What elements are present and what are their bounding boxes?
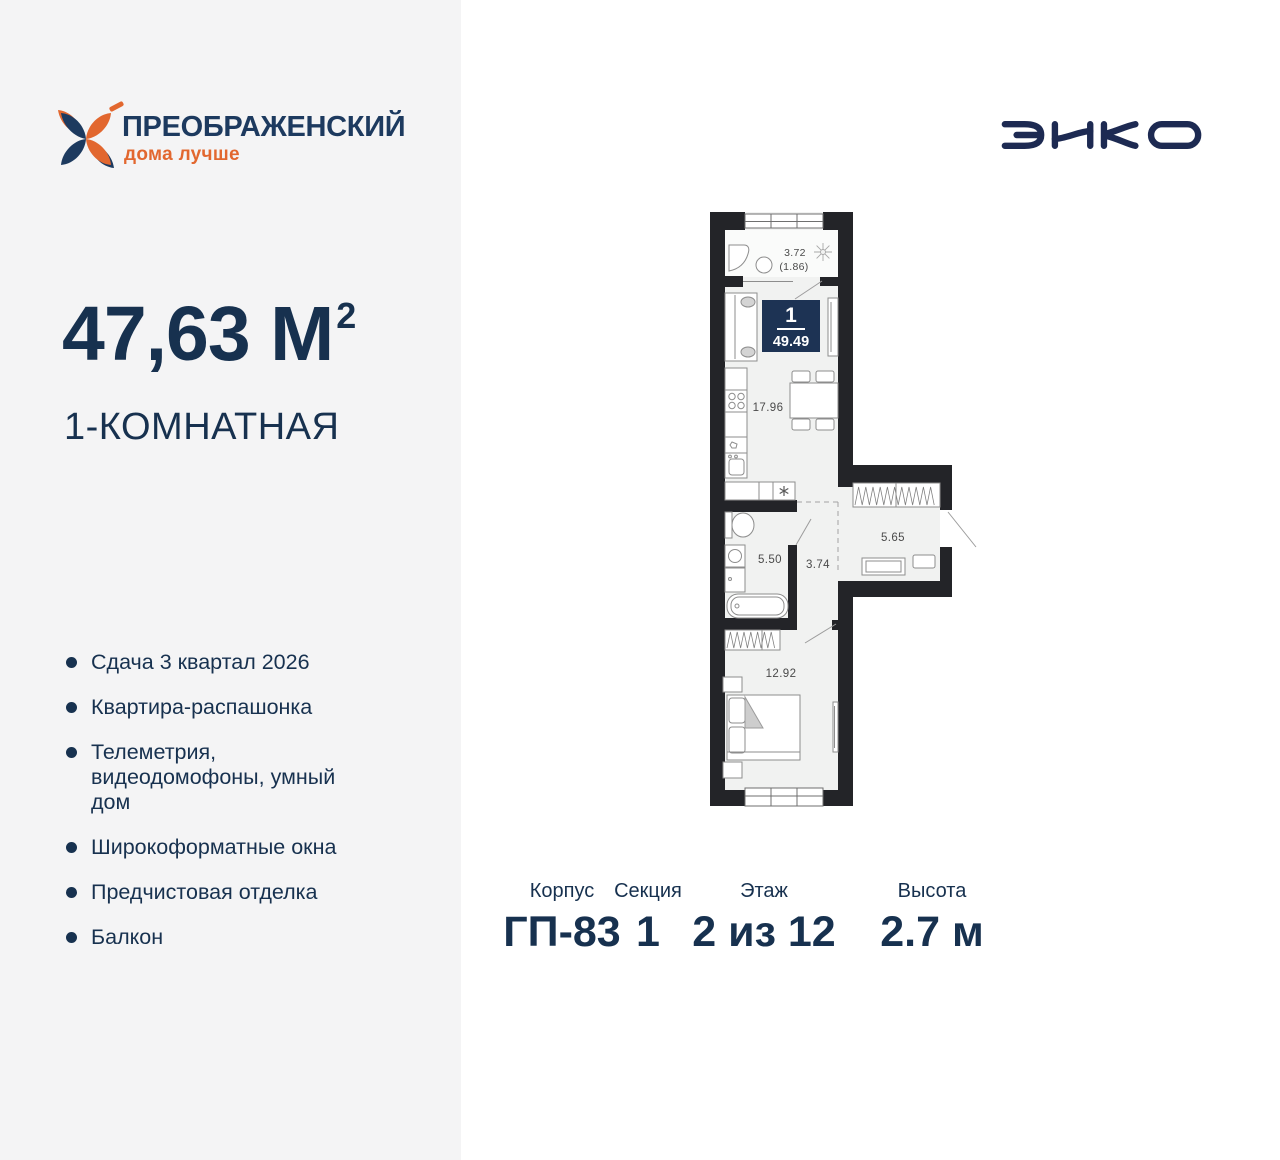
balcony-reduced-area-label: (1.86)	[779, 261, 808, 273]
enko-wordmark-icon	[998, 118, 1206, 152]
dining-table	[790, 383, 838, 418]
details-row: Корпус ГП-83 Секция 1 Этаж 2 из 12 Высот…	[0, 880, 1280, 970]
kitchen-cabinet	[725, 437, 747, 453]
pillow	[729, 698, 745, 723]
feature-item: Широкоформатные окна	[66, 835, 396, 860]
detail-floor: Этаж 2 из 12	[692, 880, 835, 957]
pouf	[913, 555, 935, 568]
chair	[816, 371, 834, 382]
bullet-dot	[66, 702, 77, 713]
badge-total-area: 49.49	[773, 334, 809, 350]
apartment-card: ПРЕОБРАЖЕНСКИЙ дома лучше 47,63 М2 1-КОМ…	[0, 0, 1280, 1160]
brand-name: ПРЕОБРАЖЕНСКИЙ	[122, 111, 405, 144]
area-title: 47,63 М2	[62, 290, 355, 379]
developer-name: ЭНКО	[1206, 118, 1207, 119]
kitchen-living-area-label: 17.96	[753, 402, 784, 414]
pillow	[729, 727, 745, 753]
feature-item: Телеметрия, видеодомофоны, умный дом	[66, 740, 396, 815]
badge-rooms: 1	[785, 304, 797, 327]
bullet-dot	[66, 657, 77, 668]
bathroom-area-label: 5.50	[758, 554, 782, 566]
chair	[816, 419, 834, 430]
entrance-area-label: 5.65	[881, 532, 905, 544]
brand-flower-icon	[58, 110, 114, 168]
detail-ceiling-height: Высота 2.7 м	[880, 880, 984, 957]
floor-plan: 1 49.49 3.72 (1.86) 17.96 5.50 3.74 5.65…	[695, 205, 995, 820]
plan-badge: 1 49.49	[762, 300, 820, 352]
bullet-dot	[66, 842, 77, 853]
toilet	[732, 513, 754, 537]
developer-logo: ЭНКО	[998, 118, 1206, 152]
nightstand	[723, 677, 742, 692]
plant-icon	[814, 243, 832, 261]
feature-item: Квартира-распашонка	[66, 695, 396, 720]
detail-building: Корпус ГП-83	[503, 880, 620, 957]
kitchen-cabinet	[725, 412, 747, 437]
kitchen-cabinet	[725, 368, 747, 390]
nightstand	[723, 762, 742, 778]
feature-item: Сдача 3 квартал 2026	[66, 650, 396, 675]
hallway-area-label: 3.74	[806, 559, 830, 571]
balcony-area-label: 3.72	[784, 247, 806, 259]
summary-panel: ПРЕОБРАЖЕНСКИЙ дома лучше 47,63 М2 1-КОМ…	[0, 0, 461, 1160]
bedroom-window	[745, 788, 823, 806]
chair	[792, 371, 810, 382]
stove	[725, 390, 747, 412]
entrance-door-swing	[948, 512, 976, 547]
room-type-title: 1-КОМНАТНАЯ	[64, 406, 339, 449]
area-value: 47,63 М	[62, 291, 333, 377]
brand-tagline: дома лучше	[124, 144, 240, 166]
bedroom-area-label: 12.92	[766, 668, 797, 680]
tv-unit	[833, 702, 838, 752]
detail-section: Секция 1	[614, 880, 682, 957]
bathroom-sink	[725, 568, 745, 592]
tv-unit	[828, 298, 838, 356]
toilet-tank	[725, 512, 732, 538]
chair	[792, 419, 810, 430]
bullet-dot	[66, 747, 77, 758]
area-superscript: 2	[336, 295, 355, 336]
